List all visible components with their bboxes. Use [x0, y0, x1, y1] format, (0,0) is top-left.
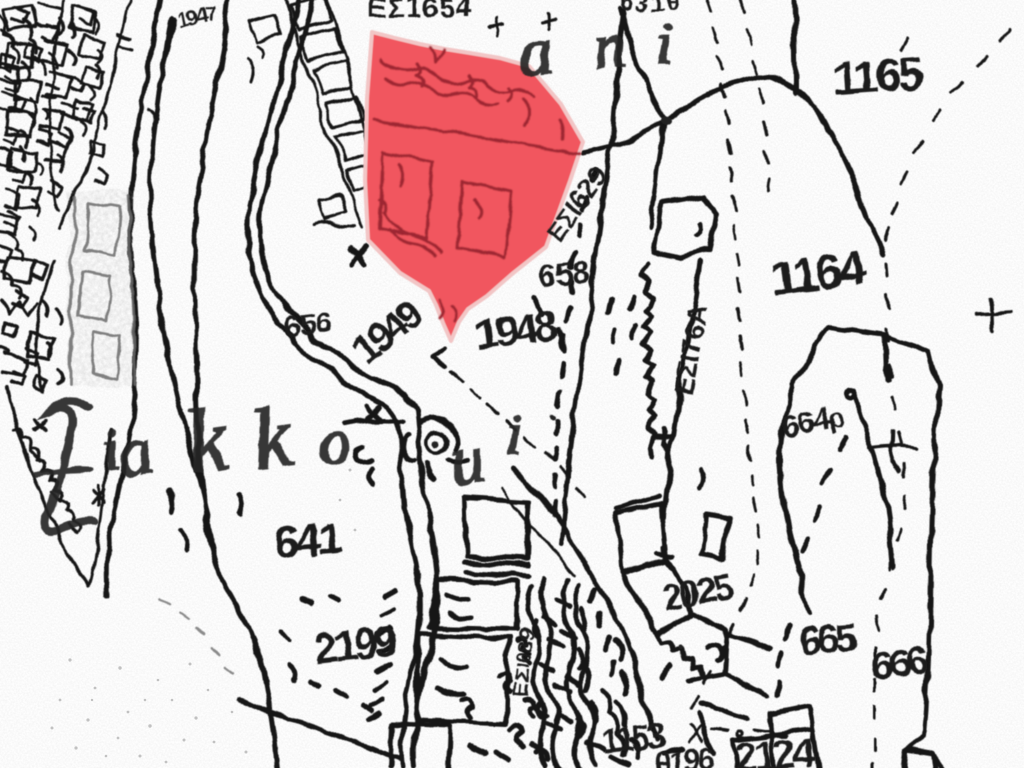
- svg-text:n: n: [592, 12, 628, 82]
- svg-text:i: i: [656, 11, 672, 76]
- svg-text:666: 666: [869, 638, 930, 689]
- svg-text:2199: 2199: [312, 617, 399, 673]
- svg-text:641: 641: [272, 511, 344, 569]
- svg-text:656: 656: [282, 306, 334, 345]
- svg-text:1948: 1948: [472, 302, 560, 360]
- svg-text:2124: 2124: [734, 731, 818, 768]
- svg-text:658: 658: [536, 254, 590, 295]
- svg-text:i: i: [506, 402, 522, 467]
- svg-text:1165: 1165: [831, 47, 925, 105]
- svg-text:ΕΣ1654: ΕΣ1654: [368, 0, 472, 23]
- svg-text:665: 665: [798, 616, 859, 664]
